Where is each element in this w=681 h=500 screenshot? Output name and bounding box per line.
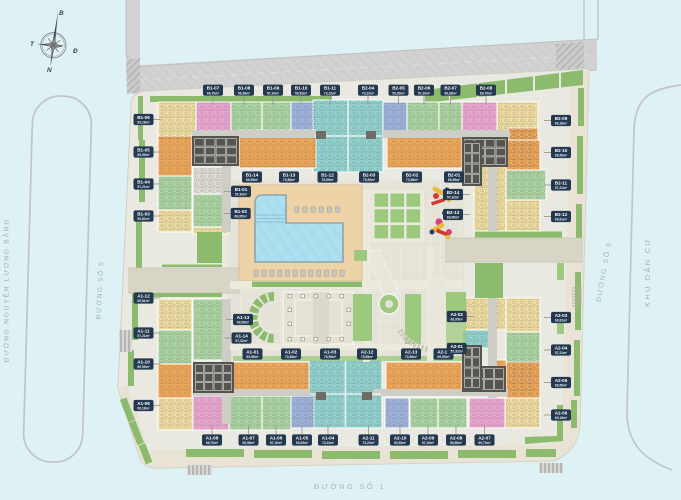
- svg-text:50,53m²: 50,53m²: [296, 441, 309, 445]
- svg-text:50,53m²: 50,53m²: [394, 441, 407, 445]
- svg-text:A1-06: A1-06: [270, 435, 283, 440]
- svg-text:56,98m²: 56,98m²: [238, 91, 251, 95]
- svg-text:A2-12: A2-12: [361, 349, 374, 354]
- svg-text:57,10m²: 57,10m²: [270, 441, 283, 445]
- svg-text:KHU DÂN CƯ: KHU DÂN CƯ: [643, 237, 652, 307]
- svg-text:B1-05: B1-05: [137, 147, 150, 152]
- svg-text:A2-09: A2-09: [422, 435, 435, 440]
- svg-text:B2-06: B2-06: [418, 86, 431, 91]
- svg-text:56,98m²: 56,98m²: [444, 91, 457, 95]
- svg-text:B2-12: B2-12: [555, 212, 568, 217]
- svg-text:70,58m²: 70,58m²: [283, 178, 296, 182]
- svg-text:75,59m²: 75,59m²: [321, 178, 334, 182]
- svg-text:69,59m²: 69,59m²: [137, 365, 150, 369]
- svg-text:B2-13: B2-13: [447, 210, 460, 215]
- svg-text:69,59m²: 69,59m²: [555, 154, 568, 158]
- svg-text:A1-12: A1-12: [137, 293, 150, 298]
- svg-text:A2-11: A2-11: [362, 435, 375, 440]
- svg-text:B1-02: B1-02: [234, 209, 247, 214]
- svg-text:69,59m²: 69,59m²: [555, 384, 568, 388]
- svg-text:ĐƯỜNG NGUYỄN LƯƠNG BẰNG: ĐƯỜNG NGUYỄN LƯƠNG BẰNG: [2, 218, 11, 363]
- svg-text:57,21m²: 57,21m²: [555, 186, 568, 190]
- svg-text:69,95m²: 69,95m²: [447, 216, 460, 220]
- svg-text:50,53m²: 50,53m²: [392, 91, 405, 95]
- svg-text:70,58m²: 70,58m²: [406, 178, 419, 182]
- svg-text:73,22m²: 73,22m²: [322, 441, 335, 445]
- svg-text:A1-10: A1-10: [137, 359, 150, 364]
- svg-text:A1-11: A1-11: [137, 328, 150, 333]
- svg-text:57,32m²: 57,32m²: [451, 350, 464, 354]
- svg-text:A1-04: A1-04: [322, 435, 335, 440]
- svg-text:A1-08: A1-08: [206, 435, 219, 440]
- svg-text:B2-03: B2-03: [363, 172, 376, 177]
- svg-text:57,32m²: 57,32m²: [235, 339, 248, 343]
- svg-text:A2-07: A2-07: [478, 435, 491, 440]
- svg-text:A2-13: A2-13: [405, 349, 418, 354]
- svg-text:69,70m²: 69,70m²: [206, 441, 219, 445]
- svg-text:69,18m²: 69,18m²: [555, 122, 568, 126]
- svg-text:A1-13: A1-13: [237, 315, 250, 320]
- svg-text:B1-03: B1-03: [137, 211, 150, 216]
- svg-text:69,95m²: 69,95m²: [448, 178, 461, 182]
- svg-text:B2-05: B2-05: [392, 86, 405, 91]
- svg-text:A2-02: A2-02: [450, 312, 463, 317]
- svg-text:B: B: [59, 10, 64, 17]
- svg-text:69,81m²: 69,81m²: [137, 217, 150, 221]
- svg-text:A1-14: A1-14: [235, 333, 248, 338]
- svg-text:69,70m²: 69,70m²: [478, 441, 491, 445]
- svg-text:ĐƯỜNG SỐ 1: ĐƯỜNG SỐ 1: [314, 481, 386, 491]
- svg-text:B2-11: B2-11: [555, 180, 568, 185]
- svg-text:A1-09: A1-09: [137, 401, 150, 406]
- svg-text:A1-05: A1-05: [296, 435, 309, 440]
- svg-text:57,10m²: 57,10m²: [422, 441, 435, 445]
- svg-text:69,70m²: 69,70m²: [480, 91, 493, 95]
- svg-text:A1-03: A1-03: [324, 349, 337, 354]
- svg-text:B2-08: B2-08: [480, 86, 493, 91]
- svg-text:75,59m²: 75,59m²: [324, 355, 337, 359]
- svg-text:B1-08: B1-08: [238, 86, 251, 91]
- svg-text:A1-01: A1-01: [246, 349, 259, 354]
- svg-text:57,21m²: 57,21m²: [137, 185, 150, 189]
- svg-text:B1-09: B1-09: [267, 86, 280, 91]
- svg-text:69,95m²: 69,95m²: [235, 215, 248, 219]
- svg-text:70,58m²: 70,58m²: [405, 355, 418, 359]
- svg-text:A2-08: A2-08: [450, 435, 463, 440]
- svg-text:B1-07: B1-07: [207, 86, 220, 91]
- svg-text:Đ: Đ: [73, 48, 78, 55]
- svg-text:57,10m²: 57,10m²: [418, 91, 431, 95]
- svg-text:69,18m²: 69,18m²: [555, 416, 568, 420]
- svg-text:B1-01: B1-01: [235, 187, 248, 192]
- svg-text:B1-06: B1-06: [137, 115, 150, 120]
- svg-text:69,59m²: 69,59m²: [137, 153, 150, 157]
- svg-text:B2-02: B2-02: [406, 172, 419, 177]
- svg-text:70,58m²: 70,58m²: [285, 355, 298, 359]
- svg-text:B1-14: B1-14: [246, 172, 259, 177]
- svg-text:B2-09: B2-09: [555, 116, 568, 121]
- svg-text:56,98m²: 56,98m²: [242, 441, 255, 445]
- svg-text:57,32m²: 57,32m²: [447, 196, 460, 200]
- svg-text:B2-01: B2-01: [448, 172, 461, 177]
- svg-text:A2-10: A2-10: [394, 435, 407, 440]
- svg-text:69,95m²: 69,95m²: [237, 321, 250, 325]
- svg-text:69,18m²: 69,18m²: [137, 121, 150, 125]
- svg-text:A1-07: A1-07: [242, 435, 255, 440]
- svg-text:A2-03: A2-03: [555, 313, 568, 318]
- svg-text:73,22m²: 73,22m²: [362, 91, 375, 95]
- svg-text:B2-10: B2-10: [555, 148, 568, 153]
- svg-text:B1-10: B1-10: [295, 86, 308, 91]
- svg-text:57,21m²: 57,21m²: [137, 334, 150, 338]
- svg-text:69,70m²: 69,70m²: [207, 91, 220, 95]
- svg-text:69,95m²: 69,95m²: [437, 355, 450, 359]
- svg-text:A2-05: A2-05: [555, 378, 568, 383]
- svg-text:B1-04: B1-04: [137, 179, 150, 184]
- svg-text:69,81m²: 69,81m²: [137, 299, 150, 303]
- svg-text:B1-12: B1-12: [321, 172, 334, 177]
- svg-text:73,22m²: 73,22m²: [324, 91, 337, 95]
- svg-text:A2-01: A2-01: [450, 344, 463, 349]
- svg-text:50,53m²: 50,53m²: [295, 91, 308, 95]
- svg-text:69,95m²: 69,95m²: [246, 355, 259, 359]
- svg-text:57,10m²: 57,10m²: [267, 91, 280, 95]
- svg-text:57,32m²: 57,32m²: [235, 193, 248, 197]
- svg-text:B1-11: B1-11: [324, 86, 337, 91]
- svg-text:75,59m²: 75,59m²: [361, 355, 374, 359]
- svg-text:A2-06: A2-06: [555, 410, 568, 415]
- svg-text:69,81m²: 69,81m²: [555, 319, 568, 323]
- svg-text:69,95m²: 69,95m²: [246, 178, 259, 182]
- svg-text:A1-02: A1-02: [285, 349, 298, 354]
- svg-text:B1-13: B1-13: [283, 172, 296, 177]
- svg-text:N: N: [47, 67, 52, 74]
- svg-text:69,81m²: 69,81m²: [555, 218, 568, 222]
- svg-text:56,98m²: 56,98m²: [450, 441, 463, 445]
- svg-text:73,22m²: 73,22m²: [362, 441, 375, 445]
- svg-text:A2-04: A2-04: [555, 345, 568, 350]
- svg-text:75,59m²: 75,59m²: [363, 178, 376, 182]
- svg-text:B2-14: B2-14: [447, 190, 460, 195]
- svg-text:69,95m²: 69,95m²: [451, 318, 464, 322]
- svg-text:69,18m²: 69,18m²: [137, 407, 150, 411]
- svg-text:B2-07: B2-07: [444, 86, 457, 91]
- svg-text:B2-04: B2-04: [362, 86, 375, 91]
- svg-text:57,21m²: 57,21m²: [555, 351, 568, 355]
